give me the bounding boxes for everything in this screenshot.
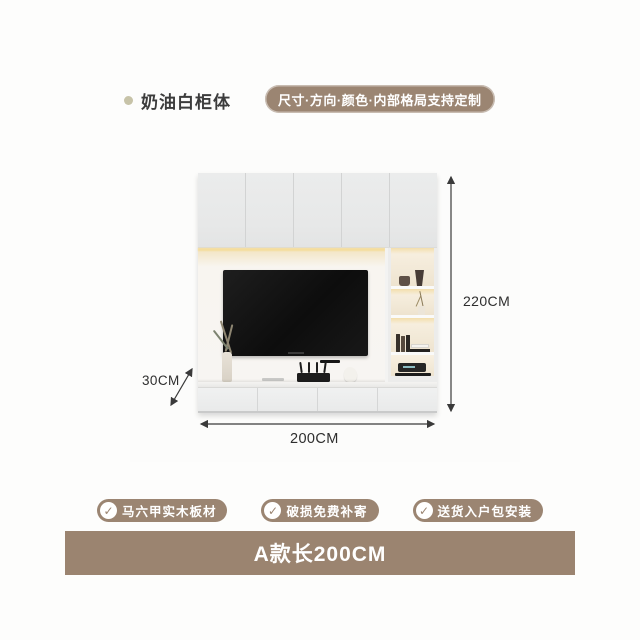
tv-wall-cabinet	[198, 173, 437, 413]
drawers	[198, 388, 437, 413]
check-icon: ✓	[264, 502, 281, 519]
drawer	[378, 388, 437, 411]
cabinet-door	[198, 173, 245, 247]
drawer	[318, 388, 377, 411]
product-card: 奶油白柜体 尺寸·方向·颜色·内部格局支持定制	[0, 0, 640, 640]
shelf-compartment	[391, 248, 434, 289]
upper-cabinet-doors	[198, 173, 437, 248]
tv-recess	[198, 248, 385, 382]
bullet-icon	[124, 96, 133, 105]
decor-audio-device	[398, 363, 426, 372]
product-photo: 220CM 200CM 30CM	[130, 150, 520, 462]
check-icon: ✓	[100, 502, 117, 519]
feature-label: 马六甲实木板材	[122, 501, 217, 520]
led-light-strip	[198, 248, 385, 251]
tv-stand	[320, 360, 340, 363]
check-icon: ✓	[416, 502, 433, 519]
depth-dimension-label: 30CM	[142, 373, 180, 388]
decor-sprig	[411, 289, 431, 315]
tv-screen	[223, 270, 368, 356]
cabinet-door	[342, 173, 389, 247]
feature-badge: ✓ 马六甲实木板材	[97, 499, 228, 522]
variant-label: A款长200CM	[254, 538, 387, 568]
decor-vase	[399, 276, 410, 286]
cabinet-door	[294, 173, 341, 247]
series-title: 奶油白柜体	[124, 88, 231, 112]
decor-vase	[415, 270, 424, 286]
cabinet-door	[390, 173, 437, 247]
feature-label: 送货入户包安装	[438, 501, 533, 520]
decor-plant	[206, 316, 240, 382]
cabinet-door	[246, 173, 293, 247]
height-dimension-label: 220CM	[463, 293, 510, 309]
shelf-compartment	[391, 289, 434, 318]
decor-books	[396, 334, 410, 352]
drawer	[198, 388, 257, 411]
feature-badge: ✓ 破损免费补寄	[261, 499, 378, 522]
open-shelves	[385, 248, 437, 382]
shelf-compartment	[391, 355, 434, 376]
drawer	[258, 388, 317, 411]
decor-book-stack	[410, 344, 430, 352]
feature-badge: ✓ 送货入户包安装	[413, 499, 544, 522]
shelf-compartment	[391, 318, 434, 355]
series-label: 奶油白柜体	[141, 88, 231, 113]
width-dimension-label: 200CM	[290, 431, 339, 447]
feature-label: 破损免费补寄	[286, 501, 367, 520]
plant-vase	[222, 352, 232, 382]
feature-badges: ✓ 马六甲实木板材 ✓ 破损免费补寄 ✓ 送货入户包安装	[0, 499, 640, 522]
variant-bar: A款长200CM	[65, 531, 575, 575]
customization-badge: 尺寸·方向·颜色·内部格局支持定制	[265, 85, 495, 113]
